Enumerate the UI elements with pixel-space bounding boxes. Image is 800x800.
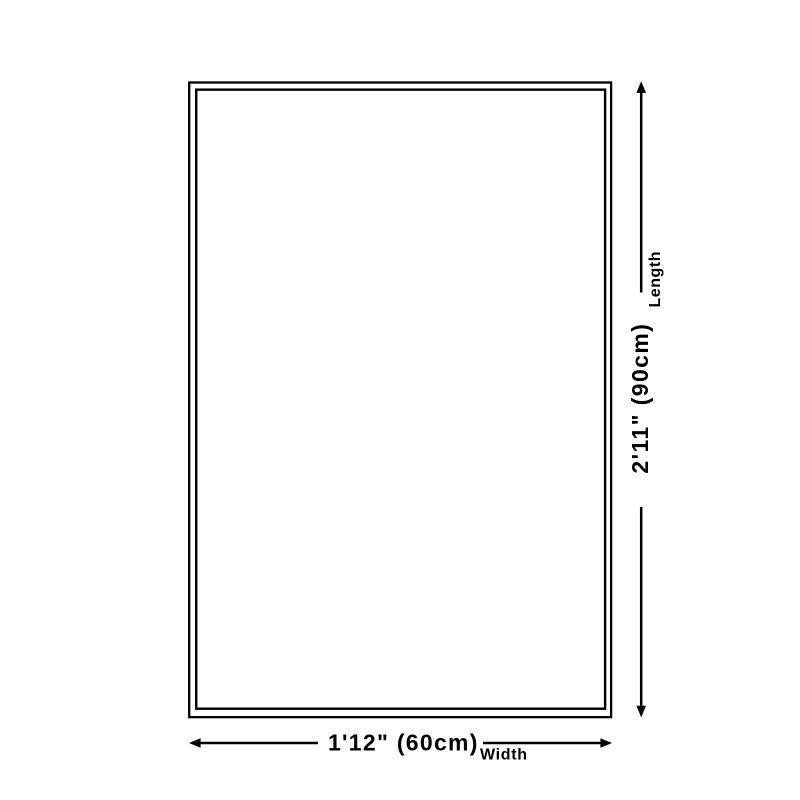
svg-text:Width: Width (480, 747, 527, 764)
svg-text:1'12" (60cm): 1'12" (60cm) (328, 730, 478, 756)
svg-text:Length: Length (647, 252, 664, 308)
svg-text:2'11" (90cm): 2'11" (90cm) (627, 324, 653, 474)
